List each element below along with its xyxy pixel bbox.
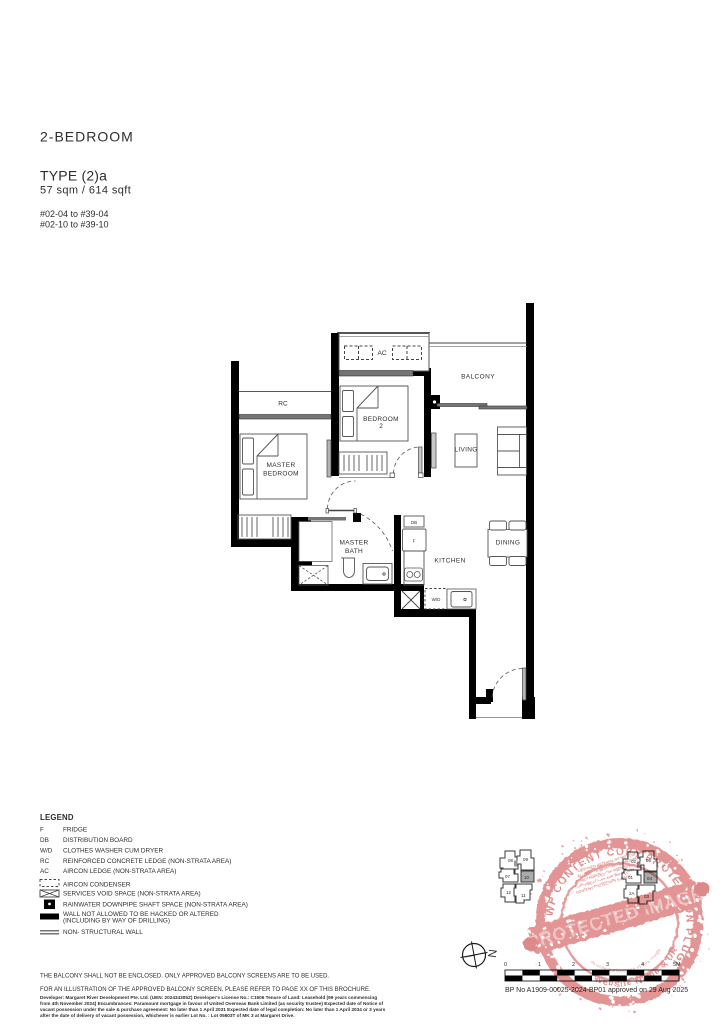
svg-text:BATH: BATH — [345, 548, 363, 555]
svg-text:from 4th November 2024) Encum: from 4th November 2024) Encumbrances: Pa… — [40, 1001, 383, 1006]
svg-text:AC: AC — [40, 868, 49, 875]
svg-text:2: 2 — [379, 423, 383, 430]
svg-text:RAINWATER DOWNPIPE SHAFT SPACE: RAINWATER DOWNPIPE SHAFT SPACE (NON-STRA… — [63, 901, 248, 908]
svg-text:04: 04 — [647, 876, 653, 881]
svg-text:TYPE (2)a: TYPE (2)a — [40, 168, 107, 184]
svg-text:DB: DB — [411, 520, 417, 525]
svg-text:AC: AC — [377, 350, 386, 357]
svg-text:DISTRIBUTION BOARD: DISTRIBUTION BOARD — [63, 837, 133, 844]
svg-text:(INCLUDING BY WAY OF DRILLING): (INCLUDING BY WAY OF DRILLING) — [63, 918, 170, 925]
svg-text:LEGEND: LEGEND — [40, 813, 74, 822]
svg-text:W/D: W/D — [40, 847, 53, 854]
svg-text:W/D: W/D — [432, 597, 441, 602]
svg-text:#02-10 to #39-10: #02-10 to #39-10 — [40, 220, 109, 230]
svg-text:#02-04 to #39-04: #02-04 to #39-04 — [40, 209, 109, 219]
svg-text:DINING: DINING — [496, 540, 521, 547]
svg-text:12: 12 — [506, 890, 512, 895]
svg-text:MASTER: MASTER — [267, 462, 296, 469]
svg-text:SERVICES VOID SPACE (NON-STRAT: SERVICES VOID SPACE (NON-STRATA AREA) — [63, 890, 201, 897]
svg-text:10: 10 — [524, 875, 530, 880]
svg-text:FRIDGE: FRIDGE — [63, 827, 87, 834]
svg-text:CLOTHES WASHER CUM DRYER: CLOTHES WASHER CUM DRYER — [63, 847, 164, 854]
svg-text:11: 11 — [521, 893, 526, 898]
svg-text:Developer: Margaret River Deve: Developer: Margaret River Development Pt… — [40, 995, 377, 1000]
svg-text:FOR AN ILLUSTRATION OF THE APP: FOR AN ILLUSTRATION OF THE APPROVED BALC… — [40, 987, 371, 993]
svg-text:RC: RC — [278, 401, 288, 408]
svg-text:NON- STRUCTURAL WALL: NON- STRUCTURAL WALL — [63, 929, 143, 936]
svg-text:after the date of delivery of: after the date of delivery of vacant pos… — [40, 1013, 295, 1018]
svg-text:KITCHEN: KITCHEN — [434, 558, 465, 565]
svg-text:REINFORCED CONCRETE LEDGE (NON: REINFORCED CONCRETE LEDGE (NON-STRATA AR… — [63, 858, 231, 865]
svg-text:07: 07 — [505, 874, 511, 879]
svg-text:F: F — [40, 827, 44, 834]
svg-text:2-BEDROOM: 2-BEDROOM — [40, 129, 134, 145]
svg-text:BEDROOM: BEDROOM — [263, 471, 299, 478]
svg-text:DB: DB — [40, 837, 49, 844]
svg-text:1: 1 — [538, 962, 541, 968]
svg-text:AIRCON LEDGE (NON-STRATA AREA): AIRCON LEDGE (NON-STRATA AREA) — [63, 868, 176, 875]
svg-text:AIRCON CONDENSER: AIRCON CONDENSER — [63, 881, 131, 888]
svg-text:57 sqm / 614 sqft: 57 sqm / 614 sqft — [40, 185, 131, 197]
svg-text:2A: 2A — [629, 891, 635, 896]
svg-text:09: 09 — [523, 857, 529, 862]
svg-text:F: F — [413, 539, 416, 544]
svg-text:0: 0 — [504, 962, 507, 968]
svg-text:08: 08 — [508, 858, 514, 863]
svg-text:LIVING: LIVING — [454, 447, 477, 454]
svg-text:vacant possession under the sa: vacant possession under the sale & purch… — [40, 1007, 386, 1012]
svg-text:BALCONY: BALCONY — [461, 374, 495, 381]
svg-text:BEDROOM: BEDROOM — [363, 416, 399, 423]
svg-text:2: 2 — [572, 962, 575, 968]
svg-text:THE BALCONY SHALL NOT BE ENCLO: THE BALCONY SHALL NOT BE ENCLOSED. ONLY … — [40, 974, 329, 980]
svg-text:MASTER: MASTER — [340, 540, 369, 547]
svg-text:N: N — [485, 949, 498, 959]
svg-text:RC: RC — [40, 858, 50, 865]
